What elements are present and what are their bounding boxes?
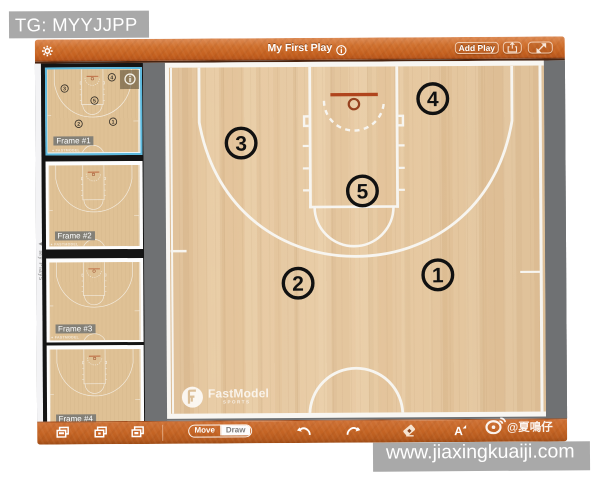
svg-text:A: A: [454, 424, 463, 437]
